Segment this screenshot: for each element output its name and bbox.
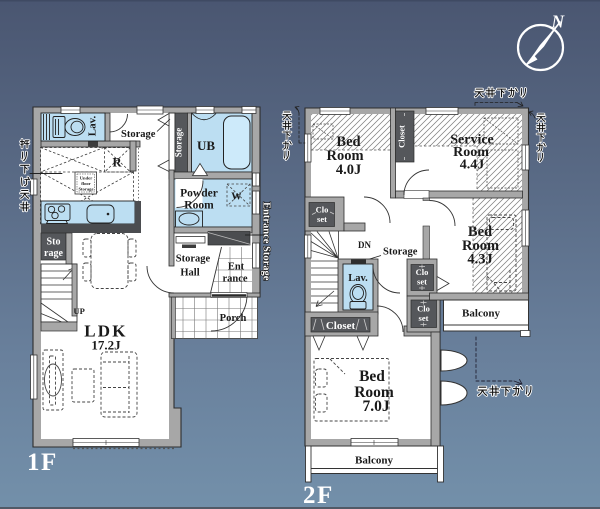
svg-text:Clo: Clo	[416, 267, 429, 277]
svg-text:Closet: Closet	[397, 125, 407, 148]
svg-text:Bed: Bed	[359, 368, 385, 385]
svg-text:Powder: Powder	[180, 188, 218, 200]
svg-text:Clo: Clo	[316, 205, 329, 215]
svg-text:UP: UP	[74, 306, 85, 316]
svg-text:2F: 2F	[303, 482, 334, 509]
svg-text:set: set	[419, 313, 429, 323]
svg-text:Clo: Clo	[417, 304, 430, 314]
svg-text:Lav.: Lav.	[348, 273, 368, 284]
svg-text:Sto: Sto	[47, 237, 61, 248]
svg-text:Balcony: Balcony	[355, 455, 393, 467]
svg-text:Hall: Hall	[180, 268, 199, 279]
svg-text:4.4J: 4.4J	[460, 158, 485, 173]
svg-text:Under: Under	[80, 176, 93, 181]
svg-text:DN: DN	[358, 240, 371, 250]
svg-text:1F: 1F	[27, 449, 58, 476]
svg-text:Storage: Storage	[78, 187, 93, 192]
svg-text:N: N	[551, 12, 566, 32]
svg-text:R: R	[112, 156, 122, 170]
svg-text:17.2J: 17.2J	[91, 338, 121, 353]
svg-text:Storage: Storage	[176, 254, 211, 265]
svg-text:Closet: Closet	[326, 320, 356, 332]
svg-text:rance: rance	[222, 274, 247, 285]
svg-text:rage: rage	[44, 248, 63, 259]
svg-text:4.0J: 4.0J	[336, 162, 361, 178]
svg-text:Storage: Storage	[121, 129, 156, 140]
svg-text:floor: floor	[81, 181, 90, 186]
svg-text:W: W	[231, 192, 242, 203]
svg-text:Balcony: Balcony	[462, 308, 500, 320]
svg-text:Room: Room	[184, 200, 214, 212]
svg-text:4.3J: 4.3J	[467, 252, 492, 268]
svg-text:Porch: Porch	[220, 313, 247, 324]
svg-text:Lav.: Lav.	[87, 116, 99, 137]
svg-text:Entrance Storage: Entrance Storage	[261, 202, 272, 281]
svg-text:Ent: Ent	[228, 262, 245, 273]
svg-text:set: set	[317, 214, 327, 224]
svg-text:set: set	[417, 277, 427, 287]
svg-text:7.0J: 7.0J	[362, 398, 389, 415]
svg-text:Storage: Storage	[174, 128, 184, 158]
svg-text:Storage: Storage	[383, 247, 418, 258]
svg-text:UB: UB	[197, 138, 215, 153]
